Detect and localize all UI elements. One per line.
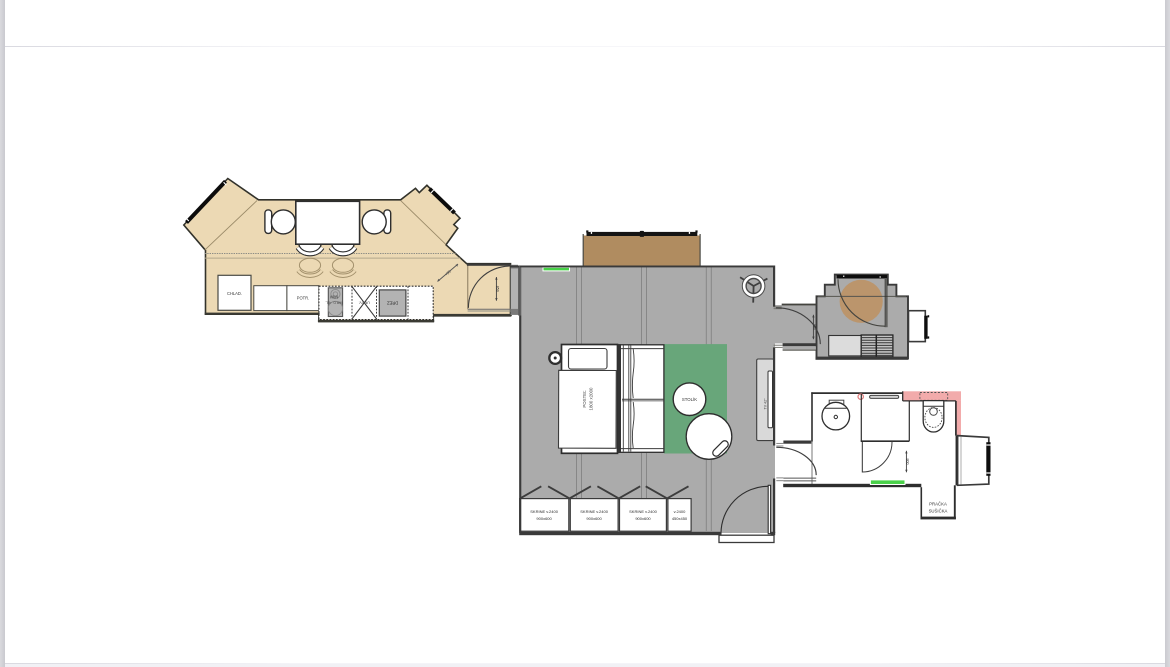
svg-text:MW: MW	[329, 295, 338, 300]
svg-text:900x600: 900x600	[536, 516, 552, 521]
svg-text:STOLÍK: STOLÍK	[682, 397, 697, 402]
svg-text:800: 800	[906, 459, 910, 465]
svg-text:CHLAD.: CHLAD.	[227, 291, 242, 296]
svg-text:900x600: 900x600	[635, 516, 651, 521]
svg-text:SKRINE v.2400: SKRINE v.2400	[530, 509, 558, 514]
svg-text:POSTEĽ: POSTEĽ	[582, 390, 587, 408]
svg-text:SUŠIČKA: SUŠIČKA	[929, 509, 948, 514]
svg-text:450x450: 450x450	[672, 516, 688, 521]
svg-text:UMYV.: UMYV.	[359, 300, 370, 304]
svg-text:850: 850	[496, 286, 500, 292]
svg-text:VAR.D. +EL.: VAR.D. +EL.	[325, 301, 343, 305]
svg-text:SKRINE v.2400: SKRINE v.2400	[629, 509, 657, 514]
svg-text:TV 42": TV 42"	[763, 398, 767, 410]
svg-text:850: 850	[813, 324, 817, 330]
svg-text:DREZ: DREZ	[386, 301, 398, 306]
svg-text:1800 x2000: 1800 x2000	[589, 387, 594, 411]
svg-text:PRAČKA: PRAČKA	[929, 502, 947, 507]
svg-text:SKRINE v.2400: SKRINE v.2400	[580, 509, 608, 514]
svg-text:POTR.: POTR.	[297, 295, 310, 300]
svg-text:v.2400: v.2400	[674, 509, 686, 514]
svg-text:900x600: 900x600	[586, 516, 602, 521]
